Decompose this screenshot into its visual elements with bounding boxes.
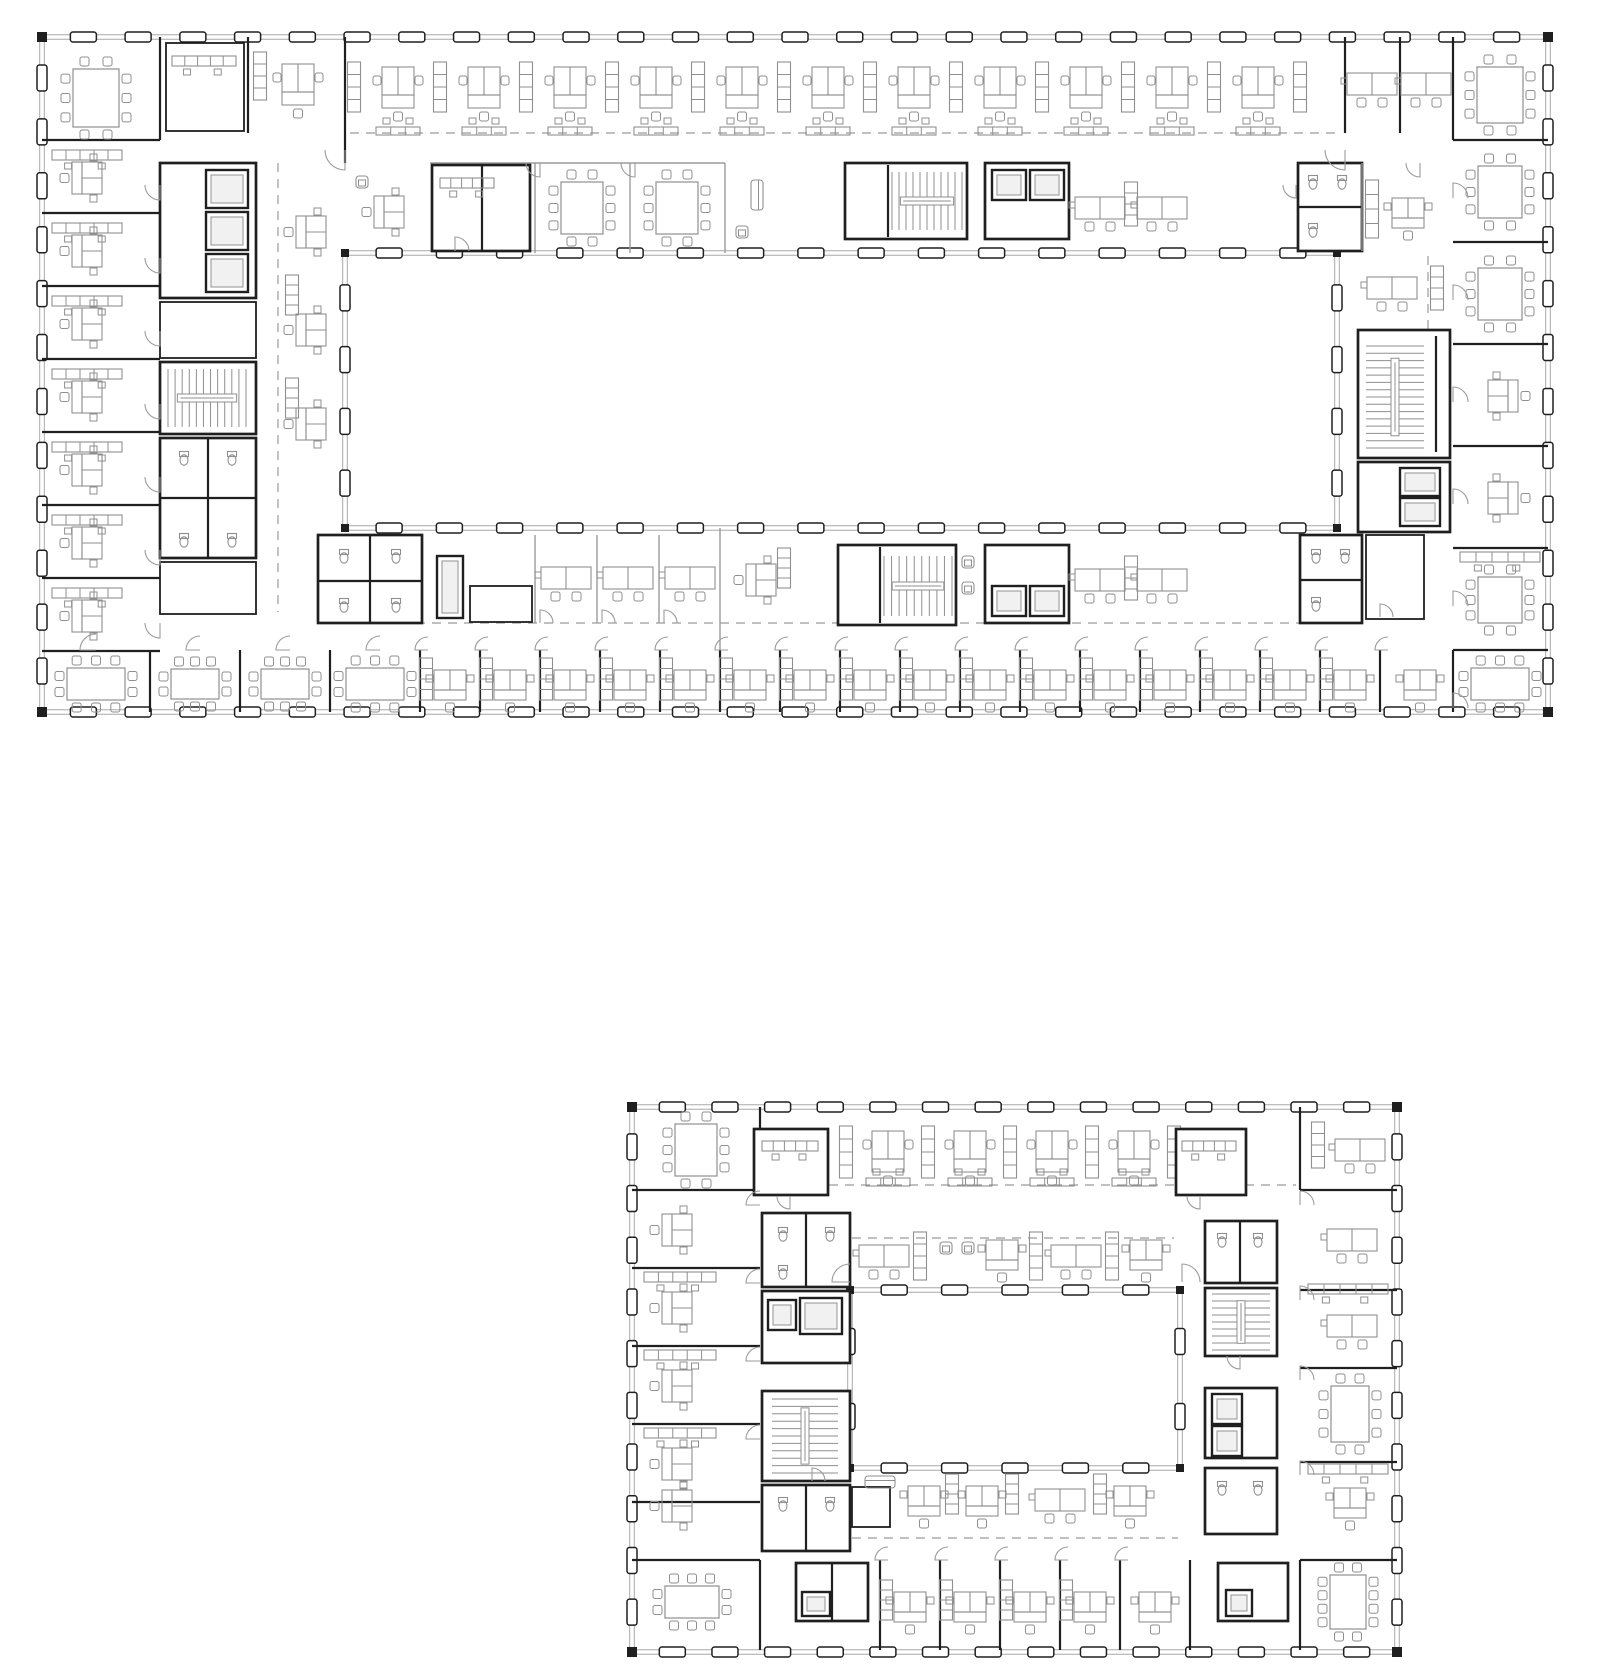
desk: [60, 154, 102, 202]
shelf: [950, 62, 963, 112]
desk-cluster: [373, 67, 423, 121]
window-icon: [1062, 1285, 1088, 1295]
window-icon: [1238, 1647, 1264, 1657]
door-swing: [535, 637, 548, 650]
shelf: [1431, 266, 1444, 310]
door-swing: [145, 404, 160, 419]
desk: [60, 592, 102, 640]
door-swing: [595, 637, 608, 650]
elevator: [1212, 1394, 1242, 1424]
desk: [1361, 277, 1417, 311]
shelf: [606, 62, 619, 112]
door-swing: [715, 637, 728, 650]
desk: [1266, 670, 1314, 712]
window-icon: [738, 523, 764, 533]
door-swing: [1255, 637, 1268, 650]
window-icon: [942, 1463, 968, 1473]
window-icon: [508, 32, 534, 42]
window-icon: [1028, 1102, 1054, 1112]
window-icon: [1392, 1599, 1402, 1625]
window-icon: [858, 523, 884, 533]
elevator: [1030, 586, 1064, 616]
meeting-table: [249, 657, 321, 711]
desk-cluster: [803, 67, 853, 121]
shelf: [960, 658, 973, 700]
window-icon: [70, 32, 96, 42]
window-icon: [1494, 32, 1520, 42]
desk: [659, 567, 715, 601]
shelf: [778, 62, 791, 112]
window-icon: [881, 1463, 907, 1473]
desk: [606, 670, 654, 712]
door-swing: [664, 610, 677, 623]
sofa: [751, 180, 763, 210]
shelf: [286, 275, 299, 315]
window-icon: [1332, 408, 1342, 434]
desk: [846, 670, 894, 712]
window-icon: [1392, 1237, 1402, 1263]
desk: [1066, 1592, 1114, 1634]
window-icon: [1080, 1102, 1106, 1112]
desk: [1122, 1240, 1170, 1282]
meeting-table: [1319, 1374, 1381, 1454]
shelf: [434, 62, 447, 112]
window-icon: [798, 523, 824, 533]
elevator: [1400, 468, 1440, 496]
desk: [650, 1284, 692, 1332]
window-icon: [975, 1102, 1001, 1112]
window-icon: [1062, 1463, 1088, 1473]
elevator: [800, 1298, 842, 1334]
shelf: [922, 1126, 935, 1178]
door-swing: [655, 637, 668, 650]
desk: [60, 300, 102, 348]
window-icon: [1028, 1647, 1054, 1657]
window-icon: [891, 707, 917, 717]
shelf: [1125, 182, 1138, 226]
desk: [597, 567, 653, 601]
door-swing: [145, 258, 160, 273]
window-icon: [627, 1496, 637, 1522]
desk: [60, 446, 102, 494]
window-icon: [1175, 1329, 1185, 1355]
door-swing: [145, 331, 160, 346]
counter: [1308, 1284, 1388, 1303]
window-icon: [1392, 1289, 1402, 1315]
window-icon: [881, 1285, 907, 1295]
window-icon: [235, 707, 261, 717]
elevator: [1226, 1590, 1252, 1616]
door-swing: [621, 163, 635, 177]
window-icon: [454, 32, 480, 42]
window-icon: [1175, 1404, 1185, 1430]
shelf: [480, 658, 493, 700]
desk: [650, 1482, 692, 1530]
shelf: [348, 62, 361, 112]
room-walls: [1205, 1468, 1277, 1534]
door-swing: [186, 636, 200, 650]
shelf: [914, 1232, 927, 1280]
window-icon: [782, 707, 808, 717]
wall-corner-post: [628, 1103, 637, 1112]
window-icon: [1099, 248, 1125, 258]
shelf: [1020, 658, 1033, 700]
meeting-table: [61, 57, 131, 139]
window-icon: [1002, 1285, 1028, 1295]
desk: [1321, 1315, 1377, 1349]
door-swing: [1015, 637, 1028, 650]
window-icon: [1080, 1647, 1106, 1657]
elevator: [768, 1300, 796, 1330]
window-icon: [765, 1647, 791, 1657]
shelf: [864, 62, 877, 112]
door-swing: [602, 610, 615, 623]
window-icon: [37, 65, 47, 91]
desk: [1029, 1489, 1085, 1523]
shelf: [1080, 658, 1093, 700]
window-icon: [870, 1102, 896, 1112]
door-swing: [875, 1547, 888, 1560]
door-swing: [935, 1547, 948, 1560]
door-swing: [1453, 693, 1468, 708]
desk: [734, 556, 776, 604]
window-icon: [817, 1647, 843, 1657]
window-icon: [1220, 32, 1246, 42]
window-icon: [942, 1285, 968, 1295]
desk: [1131, 197, 1187, 231]
desk: [284, 400, 326, 448]
window-icon: [125, 32, 151, 42]
room-walls: [852, 1487, 890, 1527]
door-swing: [746, 1347, 760, 1361]
desk: [1146, 670, 1194, 712]
meeting-table: [334, 656, 416, 712]
shelf: [1086, 1126, 1099, 1178]
window-icon: [1543, 281, 1553, 307]
window-icon: [673, 32, 699, 42]
counter: [52, 150, 122, 169]
shelf: [1094, 1474, 1107, 1514]
window-icon: [37, 496, 47, 522]
window-icon: [659, 1102, 685, 1112]
door-swing: [1182, 1264, 1200, 1282]
window-icon: [1133, 1647, 1159, 1657]
window-icon: [782, 32, 808, 42]
window-icon: [659, 1647, 685, 1657]
shelf: [540, 658, 553, 700]
window-icon: [617, 523, 643, 533]
desk: [1326, 1488, 1374, 1530]
shelf: [1200, 658, 1213, 700]
window-icon: [738, 248, 764, 258]
upper-floor-plan: [37, 32, 1553, 717]
shelf: [720, 658, 733, 700]
desk: [1131, 569, 1187, 603]
shelf: [1260, 658, 1273, 700]
desk: [535, 567, 591, 601]
lower-floor-plan: [627, 1102, 1402, 1657]
window-icon: [979, 523, 1005, 533]
window-icon: [1392, 1341, 1402, 1367]
window-icon: [1543, 550, 1553, 576]
desk-cluster: [1061, 67, 1111, 121]
desk: [966, 670, 1014, 712]
window-icon: [37, 227, 47, 253]
desk-cluster: [545, 67, 595, 121]
window-icon: [1220, 248, 1246, 258]
window-icon: [37, 442, 47, 468]
door-swing: [1135, 637, 1148, 650]
window-icon: [1001, 707, 1027, 717]
elevator: [437, 556, 463, 618]
desk: [853, 1245, 909, 1279]
window-icon: [1056, 707, 1082, 717]
window-icon: [1344, 1102, 1370, 1112]
window-icon: [1392, 1496, 1402, 1522]
window-icon: [765, 1102, 791, 1112]
window-icon: [1110, 32, 1136, 42]
window-icon: [1543, 227, 1553, 253]
window-icon: [563, 32, 589, 42]
wall-corner-post: [38, 708, 47, 717]
desk: [426, 670, 474, 712]
window-icon: [340, 470, 350, 496]
window-icon: [344, 32, 370, 42]
desk: [786, 670, 834, 712]
wall-corner-post: [38, 33, 47, 42]
window-icon: [1392, 1444, 1402, 1470]
door-swing: [1055, 1547, 1068, 1560]
shelf: [1312, 1122, 1325, 1168]
meeting-table: [159, 657, 231, 711]
window-icon: [627, 1237, 637, 1263]
room-walls: [160, 302, 256, 358]
desk: [666, 670, 714, 712]
door-swing: [80, 634, 96, 650]
desk: [1488, 372, 1530, 420]
armchair: [940, 1242, 952, 1254]
window-icon: [975, 1647, 1001, 1657]
elevator: [1400, 498, 1440, 526]
armchair: [736, 226, 748, 238]
window-icon: [340, 347, 350, 373]
page: [0, 0, 1600, 1669]
window-icon: [918, 248, 944, 258]
window-icon: [289, 707, 315, 717]
desk: [1106, 1486, 1154, 1528]
desk: [726, 670, 774, 712]
window-icon: [1133, 1102, 1159, 1112]
desk: [60, 519, 102, 567]
window-icon: [837, 32, 863, 42]
door-swing: [366, 636, 380, 650]
window-icon: [180, 32, 206, 42]
wall-corner-post: [1334, 525, 1341, 532]
door-swing: [145, 550, 160, 565]
door-swing: [746, 1425, 760, 1439]
door-swing: [325, 150, 345, 170]
desk: [886, 1592, 934, 1634]
shelf: [692, 62, 705, 112]
window-icon: [627, 1134, 637, 1160]
window-icon: [1439, 32, 1465, 42]
door-swing: [540, 610, 553, 623]
shelf: [1122, 62, 1135, 112]
desk: [1329, 1139, 1385, 1173]
shelf: [1106, 1232, 1119, 1280]
window-icon: [798, 248, 824, 258]
door-swing: [145, 185, 160, 200]
elevator: [206, 254, 248, 292]
door-swing: [475, 637, 488, 650]
window-icon: [627, 1599, 637, 1625]
door-swing: [835, 637, 848, 650]
door-swing: [895, 637, 908, 650]
window-icon: [1543, 335, 1553, 361]
desk: [1326, 670, 1374, 712]
desk-cluster: [273, 64, 323, 118]
wall-corner-post: [1544, 33, 1553, 42]
shelf: [420, 658, 433, 700]
window-icon: [1543, 388, 1553, 414]
wall-corner-post: [342, 250, 349, 257]
window-icon: [37, 173, 47, 199]
desk-cluster: [945, 1131, 995, 1185]
counter: [1460, 552, 1540, 571]
shelf: [840, 1126, 853, 1178]
desk: [650, 1440, 692, 1488]
window-icon: [1332, 347, 1342, 373]
window-icon: [1220, 523, 1246, 533]
window-icon: [376, 248, 402, 258]
window-icon: [37, 388, 47, 414]
door-swing: [1300, 1191, 1314, 1205]
window-icon: [1099, 523, 1125, 533]
elevator: [992, 170, 1026, 200]
counter: [52, 223, 122, 242]
window-icon: [557, 523, 583, 533]
desk: [1086, 670, 1134, 712]
window-icon: [858, 248, 884, 258]
window-icon: [1329, 32, 1355, 42]
window-icon: [289, 32, 315, 42]
shelf: [1366, 180, 1379, 238]
window-icon: [1238, 1102, 1264, 1112]
window-icon: [340, 408, 350, 434]
shelf: [946, 1474, 959, 1514]
counter: [52, 515, 122, 534]
door-swing: [1375, 637, 1388, 650]
armchair: [962, 1242, 974, 1254]
window-icon: [1039, 523, 1065, 533]
desk: [546, 670, 594, 712]
shelf: [1000, 1580, 1013, 1620]
shelf: [880, 1580, 893, 1620]
window-icon: [677, 523, 703, 533]
window-icon: [37, 550, 47, 576]
room-walls: [160, 562, 256, 614]
shelf: [1294, 62, 1307, 112]
counter: [52, 442, 122, 461]
window-icon: [712, 1647, 738, 1657]
window-icon: [1039, 248, 1065, 258]
window-icon: [1159, 248, 1185, 258]
door-swing: [1300, 1286, 1314, 1300]
window-icon: [1056, 32, 1082, 42]
window-icon: [946, 32, 972, 42]
elevator: [802, 1592, 830, 1616]
window-icon: [454, 707, 480, 717]
floor-plans-drawing: [0, 0, 1600, 1669]
meeting-table: [1466, 565, 1534, 635]
desk-cluster: [459, 67, 509, 121]
window-icon: [870, 1647, 896, 1657]
wall-corner-post: [1177, 1465, 1184, 1472]
window-icon: [1332, 470, 1342, 496]
desk: [906, 670, 954, 712]
window-icon: [1543, 604, 1553, 630]
door-swing: [1283, 185, 1296, 198]
elevator: [206, 170, 248, 208]
window-icon: [1002, 1463, 1028, 1473]
meeting-table: [55, 656, 137, 712]
door-swing: [145, 623, 160, 638]
desk: [362, 188, 404, 236]
door-swing: [1227, 1356, 1240, 1369]
window-icon: [1123, 1463, 1149, 1473]
window-icon: [1384, 32, 1410, 42]
window-icon: [1280, 523, 1306, 533]
window-icon: [712, 1102, 738, 1112]
window-icon: [1275, 32, 1301, 42]
meeting-table: [663, 1112, 729, 1188]
counter: [1308, 1464, 1388, 1483]
shelf: [1004, 1126, 1017, 1178]
window-icon: [557, 248, 583, 258]
window-icon: [1165, 32, 1191, 42]
desk: [1006, 1592, 1054, 1634]
desk: [1069, 569, 1125, 603]
desk: [978, 1240, 1026, 1282]
door-swing: [1195, 637, 1208, 650]
counter: [52, 369, 122, 388]
wall-corner-post: [1393, 1648, 1402, 1657]
window-icon: [37, 604, 47, 630]
window-icon: [1291, 1647, 1317, 1657]
door-swing: [746, 1269, 760, 1283]
desk: [60, 373, 102, 421]
window-icon: [1439, 707, 1465, 717]
desk: [1206, 670, 1254, 712]
shelf: [1006, 1474, 1019, 1514]
meeting-table: [1459, 656, 1541, 712]
wall-corner-post: [1177, 1287, 1184, 1294]
door-swing: [1315, 637, 1328, 650]
window-icon: [1543, 658, 1553, 684]
window-icon: [1543, 173, 1553, 199]
window-icon: [37, 658, 47, 684]
room-walls: [754, 1129, 828, 1195]
desk-cluster: [1027, 1131, 1077, 1185]
window-icon: [37, 335, 47, 361]
meeting-table: [1466, 154, 1534, 230]
wall-corner-post: [1544, 708, 1553, 717]
desk-cluster: [863, 1131, 913, 1185]
meeting-table: [549, 170, 615, 246]
window-icon: [1543, 496, 1553, 522]
meeting-table: [1465, 55, 1535, 135]
window-icon: [1123, 1285, 1149, 1295]
